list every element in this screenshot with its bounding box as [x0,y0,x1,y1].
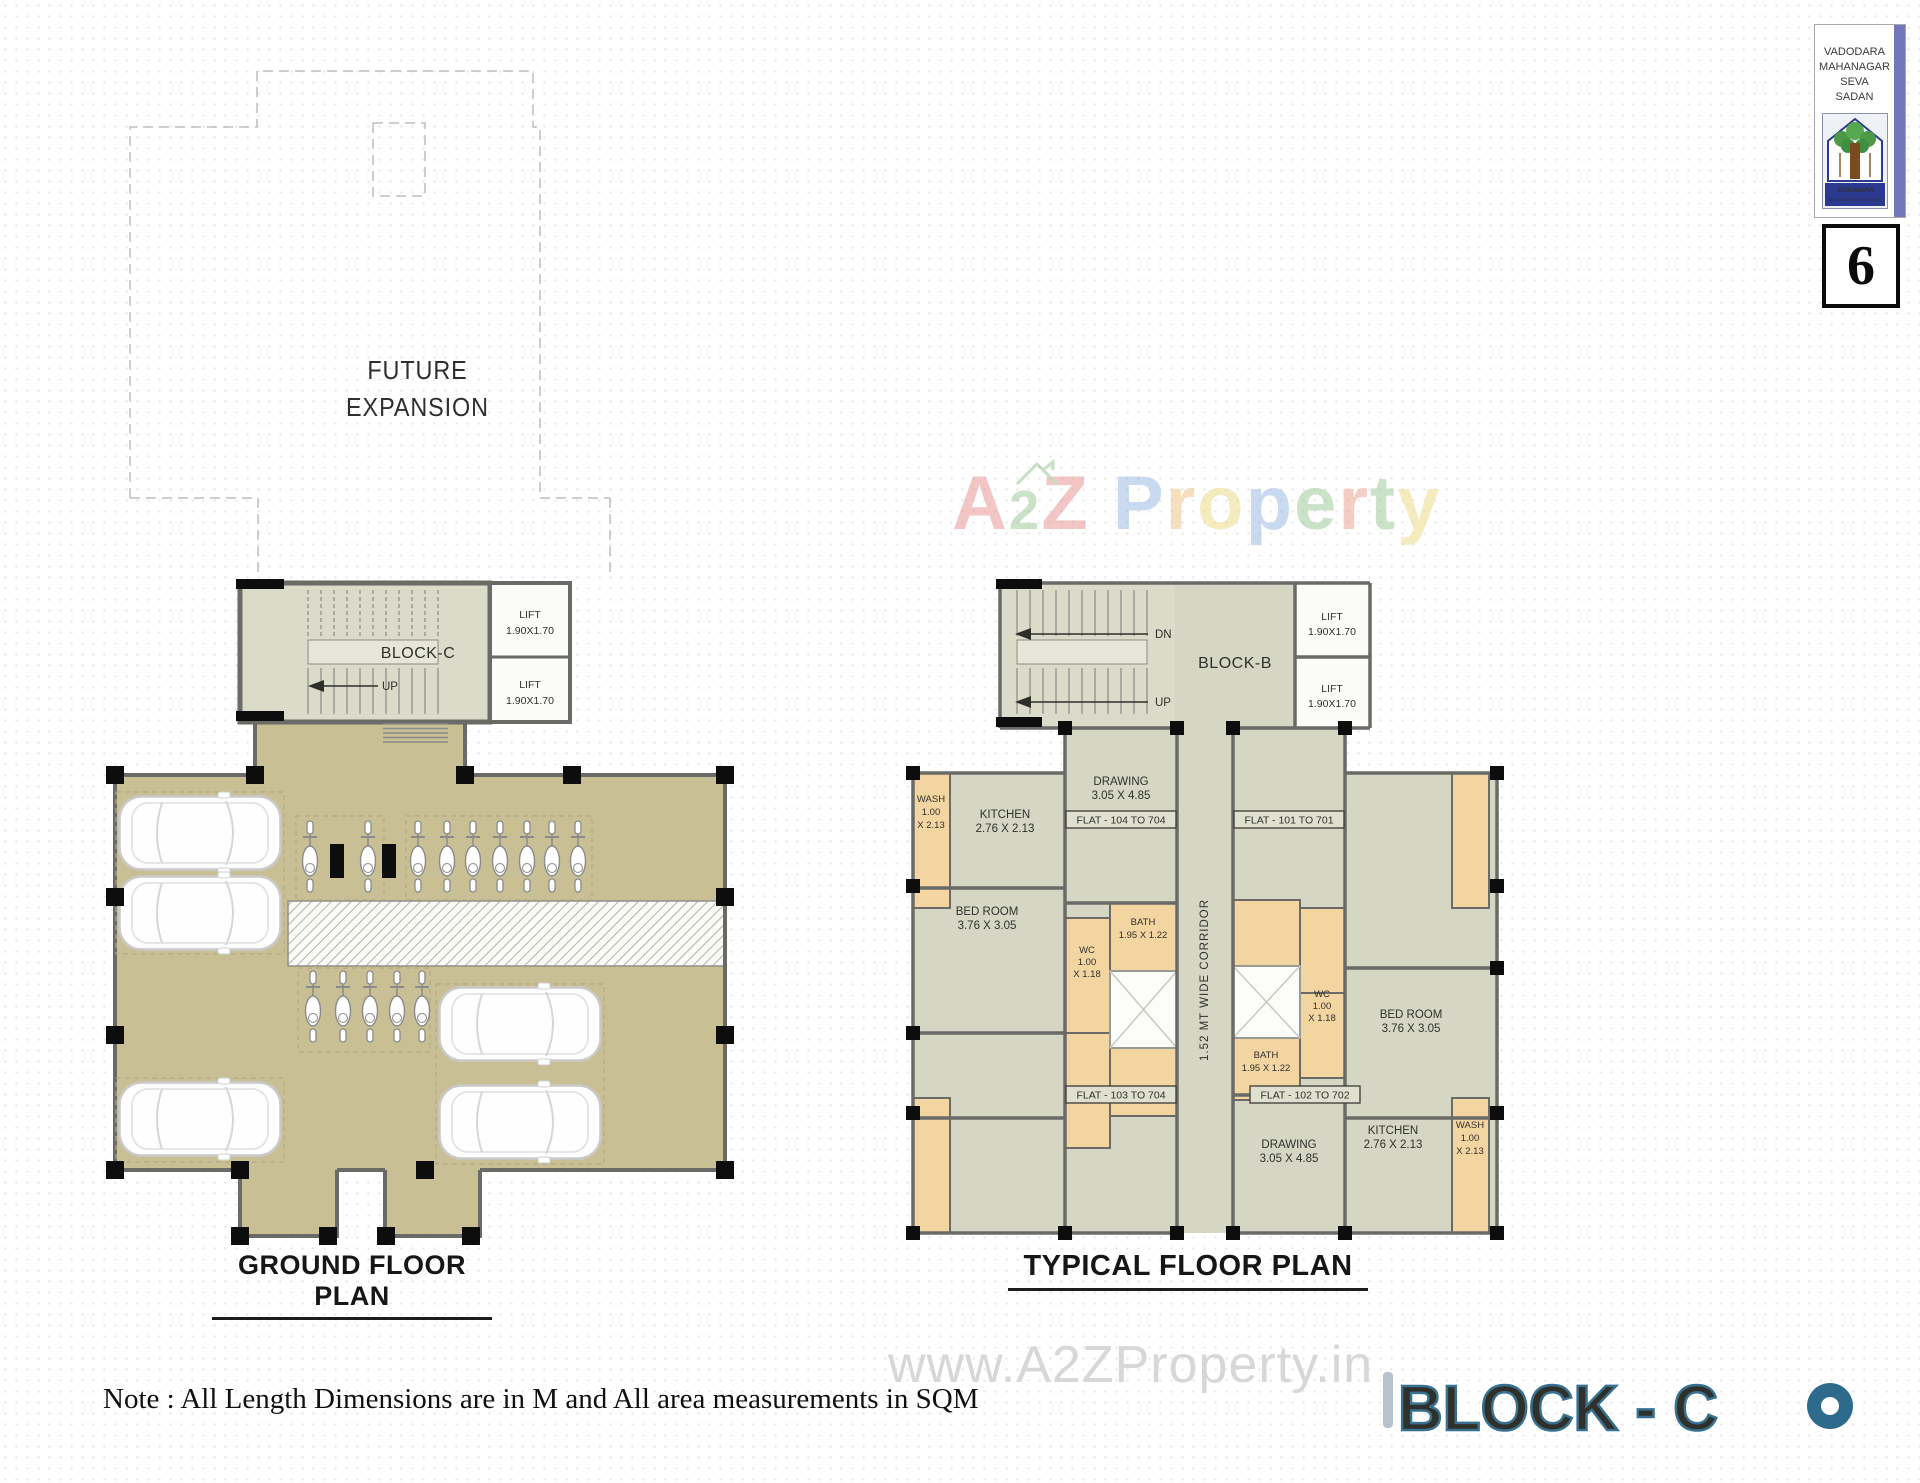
driveway-hatch [288,901,725,966]
tree-emblem-icon: VADODARA MAHANAGAR SEVA SADAN [1822,113,1888,209]
ground-stair-core: BLOCK-C UP [236,579,570,742]
future-expansion-label: FUTURE EXPANSION [339,352,497,426]
room-wash-101 [1452,773,1489,908]
typical-floor-plan: DN UP BLOCK-B LIFT 1.90X1.70 LIFT 1.90X1… [905,578,1505,1278]
room-label-bath-dim: 1.95 X 1.22 [1119,930,1168,941]
watermark-a2z: A2Z Property [952,460,1472,547]
emblem-subtitle: MAHANAGAR SEVA SADAN [1829,197,1881,202]
room-label-bedroom: BED ROOM [1380,1009,1443,1021]
room-label-bath: BATH [1254,1050,1279,1061]
room-label-wash-dim: X 2.13 [917,820,944,831]
emblem-title: VADODARA [1836,187,1873,194]
car-icon [440,1081,601,1163]
org-line: VADODARA [1815,45,1894,60]
typical-up-label: UP [1155,697,1171,709]
room-label-kitchen: KITCHEN [980,809,1030,821]
typical-dn-label: DN [1155,629,1172,641]
ground-lift1-size: 1.90X1.70 [506,625,554,637]
municipal-logo: VADODARA MAHANAGAR SEVA SADAN VADODARA M… [1814,24,1906,218]
car-icon [440,983,601,1065]
car-icon [120,872,281,954]
flat-101-tag: FLAT - 101 TO 701 [1244,815,1333,827]
ground-floor-plan: BLOCK-C UP LIFT 1.90X1.70 LIFT 1.90X1.70 [90,578,770,1278]
room-label-drawing-dim: 3.05 X 4.85 [1260,1153,1319,1165]
room-label-wc-dim: X 1.18 [1308,1013,1335,1024]
ground-lift2-size: 1.90X1.70 [506,695,554,707]
room-label-drawing-dim: 3.05 X 4.85 [1092,790,1151,802]
car-icon [120,1078,281,1160]
typical-lift1-label: LIFT [1321,611,1343,623]
flat-102-tag: FLAT - 102 TO 702 [1260,1090,1349,1102]
room-label-bedroom-dim: 3.76 X 3.05 [1382,1023,1441,1035]
room-label-bath: BATH [1131,917,1156,928]
room-label-wash: WASH [1456,1120,1484,1131]
room-label-bedroom-dim: 3.76 X 3.05 [958,920,1017,932]
sheet-title-text: BLOCK - C [1398,1372,1718,1444]
corridor-label: 1.52 MT WIDE CORRIDOR [1199,899,1211,1061]
flat-104-tag: FLAT - 104 TO 704 [1076,815,1165,827]
room-label-drawing: DRAWING [1261,1139,1316,1151]
logo-stripe [1894,25,1905,217]
car-icon [120,792,281,874]
ground-lift2-label: LIFT [519,679,541,691]
room-label-wash-dim: 1.00 [922,807,941,818]
room-label-wc-dim: 1.00 [1078,957,1097,968]
room-label-wc: WC [1079,945,1095,956]
room-label-bedroom: BED ROOM [956,906,1019,918]
org-name: VADODARA MAHANAGAR SEVA SADAN [1815,45,1894,105]
ground-plan-title: GROUND FLOOR PLAN [212,1250,492,1320]
room-label-drawing: DRAWING [1093,776,1148,788]
room-label-wash: WASH [917,794,945,805]
flat-103-tag: FLAT - 103 TO 704 [1076,1090,1165,1102]
org-line: SEVA [1815,75,1894,90]
dimension-note: Note : All Length Dimensions are in M an… [103,1383,978,1416]
sheet-title: BLOCK - C [1390,1362,1900,1454]
ground-up-label: UP [382,681,398,693]
room-label-wash-dim: 1.00 [1461,1133,1480,1144]
room-wc-101 [1300,908,1345,993]
typical-lift1-size: 1.90X1.70 [1308,626,1356,638]
typical-block-label: BLOCK-B [1198,655,1272,672]
a2z-house-icon [1014,456,1060,486]
typical-plan-title: TYPICAL FLOOR PLAN [1008,1250,1368,1291]
flat-103-labels: FLAT - 103 TO 704 [1066,1086,1176,1103]
room-label-kitchen-dim: 2.76 X 2.13 [1364,1139,1423,1151]
room-bath-101 [1233,900,1300,966]
page-number: 6 [1822,224,1900,308]
donut-icon [1807,1383,1853,1429]
room-label-wc-dim: 1.00 [1313,1001,1332,1012]
flat-101-labels: FLAT - 101 TO 701 [1234,811,1344,828]
room-label-kitchen-dim: 2.76 X 2.13 [976,823,1035,835]
org-line: MAHANAGAR [1815,60,1894,75]
ground-block-label: BLOCK-C [381,645,456,662]
ground-lift1-label: LIFT [519,609,541,621]
room-label-wc: WC [1314,989,1330,1000]
room-bath-103 [1110,1048,1177,1116]
plan-sheet: FUTURE EXPANSION A2Z Property [0,0,1920,1483]
room-label-bath-dim: 1.95 X 1.22 [1242,1063,1291,1074]
room-label-wc-dim: X 1.18 [1073,969,1100,980]
room-label-wash-dim: X 2.13 [1456,1146,1483,1157]
typical-lift2-label: LIFT [1321,683,1343,695]
org-line: SADAN [1815,90,1894,105]
typical-lift2-size: 1.90X1.70 [1308,698,1356,710]
room-label-kitchen: KITCHEN [1368,1125,1418,1137]
future-expansion-outline [100,50,660,610]
future-expansion-line1: FUTURE [339,352,497,389]
future-expansion-line2: EXPANSION [339,389,497,426]
